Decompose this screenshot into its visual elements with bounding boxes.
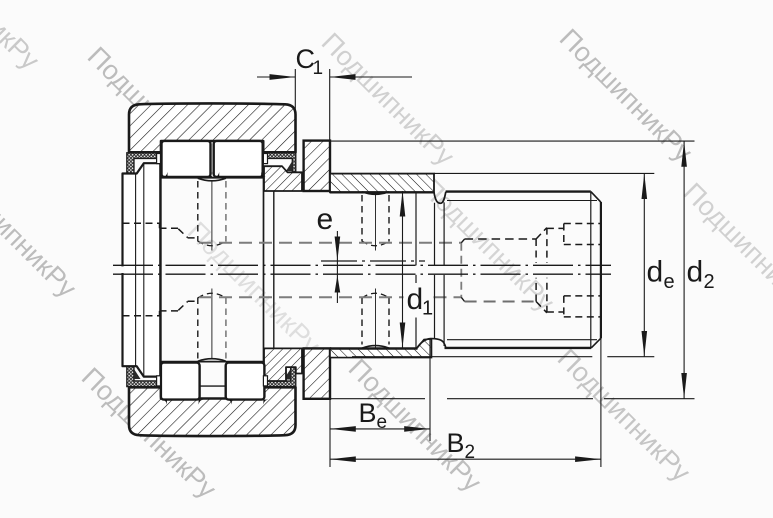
svg-text:e: e (664, 271, 675, 293)
svg-text:d: d (407, 283, 424, 316)
svg-text:d: d (647, 256, 664, 289)
svg-text:1: 1 (313, 58, 324, 79)
svg-text:B: B (447, 428, 465, 458)
svg-text:d: d (687, 256, 704, 289)
svg-text:e: e (377, 412, 388, 433)
svg-text:B: B (359, 398, 377, 428)
svg-text:e: e (317, 203, 334, 236)
svg-text:1: 1 (422, 298, 433, 320)
svg-text:2: 2 (704, 271, 715, 293)
svg-text:2: 2 (465, 442, 476, 463)
